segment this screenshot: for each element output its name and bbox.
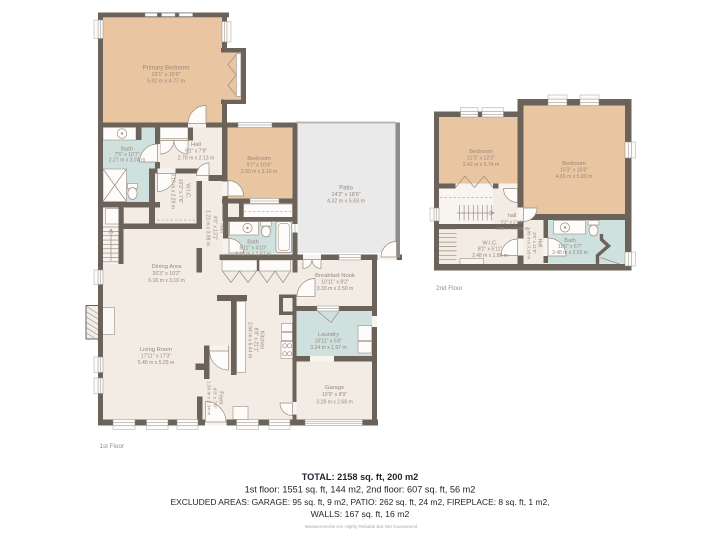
svg-text:10'9" x 8'9": 10'9" x 8'9" [322,392,347,398]
svg-text:Hall: Hall [219,223,225,233]
svg-text:1st floor: 1551 sq. ft, 144 m2: 1st floor: 1551 sq. ft, 144 m2, 2nd floo… [245,485,476,495]
svg-text:Living Room: Living Room [140,347,172,353]
svg-text:Hall: Hall [191,142,201,148]
svg-text:2.78 m x 2.13 m: 2.78 m x 2.13 m [178,155,215,161]
svg-text:Bedroom: Bedroom [562,161,586,167]
svg-text:10'11" x 6'6": 10'11" x 6'6" [315,339,343,345]
svg-text:3.28 m x 2.68 m: 3.28 m x 2.68 m [316,399,353,405]
svg-text:5.45 m x 5.25 m: 5.45 m x 5.25 m [138,360,175,366]
svg-text:Laundry: Laundry [318,332,339,338]
svg-text:Kitchen: Kitchen [259,331,265,350]
svg-text:20'3" x 10'2": 20'3" x 10'2" [153,271,181,277]
svg-text:3.34 m x 1.97 m: 3.34 m x 1.97 m [310,345,347,351]
svg-text:4.32 m x 5.63 m: 4.32 m x 5.63 m [327,199,366,205]
svg-text:2.27 m x 3.24 m: 2.27 m x 3.24 m [109,158,146,164]
svg-text:hall: hall [508,213,516,219]
svg-text:8'2" x 5'11": 8'2" x 5'11" [478,247,502,253]
svg-text:1.06 m x 3.10 m: 1.06 m x 3.10 m [526,227,531,260]
svg-text:Dining Area: Dining Area [152,264,183,270]
svg-text:4.65 m x 5.03 m: 4.65 m x 5.03 m [556,174,593,180]
svg-text:Breakfast Nook: Breakfast Nook [315,273,355,279]
svg-text:0.96 m x 0.85 m: 0.96 m x 0.85 m [495,226,529,231]
svg-text:10'11" x 8'2": 10'11" x 8'2" [321,279,349,285]
svg-text:11'3" x 12'3": 11'3" x 12'3" [467,155,495,161]
svg-text:1.30 m x 2.34 m: 1.30 m x 2.34 m [206,381,212,415]
svg-text:Bedroom: Bedroom [469,149,493,155]
svg-text:19'1" x 15'8": 19'1" x 15'8" [151,72,180,78]
svg-text:3.33 m x 2.50 m: 3.33 m x 2.50 m [317,286,354,292]
svg-text:Measurements Are Highly Reliab: Measurements Are Highly Reliable But Not… [305,524,418,529]
svg-text:9'1" x 7'9": 9'1" x 7'9" [185,149,207,155]
svg-text:3.48 m x 2.02 m: 3.48 m x 2.02 m [552,250,588,256]
svg-text:6.16 m x 3.10 m: 6.16 m x 3.10 m [148,278,185,284]
svg-text:3.42 m x 3.74 m: 3.42 m x 3.74 m [463,162,500,168]
svg-text:2.64 m x 6.44 m: 2.64 m x 6.44 m [246,322,252,358]
svg-text:W.I.C.: W.I.C. [185,183,191,199]
svg-text:WALLS: 167 sq. ft, 16 m2: WALLS: 167 sq. ft, 16 m2 [311,509,410,519]
svg-text:4'0" x 13'1": 4'0" x 13'1" [212,216,218,241]
svg-text:4'3" x 7'8": 4'3" x 7'8" [212,388,218,409]
svg-text:2.72 m x 1.67 m: 2.72 m x 1.67 m [235,252,271,258]
svg-text:3'2" x 2'10": 3'2" x 2'10" [500,220,523,225]
svg-text:2.93 m x 3.16 m: 2.93 m x 3.16 m [241,169,278,175]
svg-text:3.10 m x 2.29 m: 3.10 m x 2.29 m [170,173,176,209]
svg-text:Garage: Garage [325,385,344,391]
svg-text:Primary Bedroom: Primary Bedroom [143,66,190,72]
svg-text:17'11" x 17'3": 17'11" x 17'3" [141,353,172,359]
svg-text:14'2" x 18'6": 14'2" x 18'6" [331,192,360,198]
svg-text:Bedroom: Bedroom [247,156,271,162]
svg-text:W.I.C.: W.I.C. [482,241,498,247]
svg-text:EXCLUDED AREAS: GARAGE: 95 sq.: EXCLUDED AREAS: GARAGE: 95 sq. ft, 9 m2,… [170,497,549,507]
svg-text:1st Floor: 1st Floor [100,443,125,450]
svg-text:3'6" x 11'5": 3'6" x 11'5" [532,232,537,254]
svg-text:1.23 m x 3.98 m: 1.23 m x 3.98 m [205,210,211,246]
svg-text:15'3" x 16'6": 15'3" x 16'6" [560,167,588,173]
svg-text:5.82 m x 4.77 m: 5.82 m x 4.77 m [147,79,186,85]
svg-text:TOTAL: 2158 sq. ft, 200 m2: TOTAL: 2158 sq. ft, 200 m2 [302,472,419,482]
svg-text:8'8" x 21'1": 8'8" x 21'1" [253,328,259,353]
svg-text:Foyer: Foyer [218,391,224,405]
svg-text:10'2" x 7'6": 10'2" x 7'6" [177,179,183,204]
svg-text:2.48 m x 1.80 m: 2.48 m x 1.80 m [472,253,508,259]
svg-text:Patio: Patio [339,186,353,192]
svg-text:2nd Floor: 2nd Floor [436,285,463,292]
svg-text:9'7" x 10'4": 9'7" x 10'4" [246,162,271,168]
